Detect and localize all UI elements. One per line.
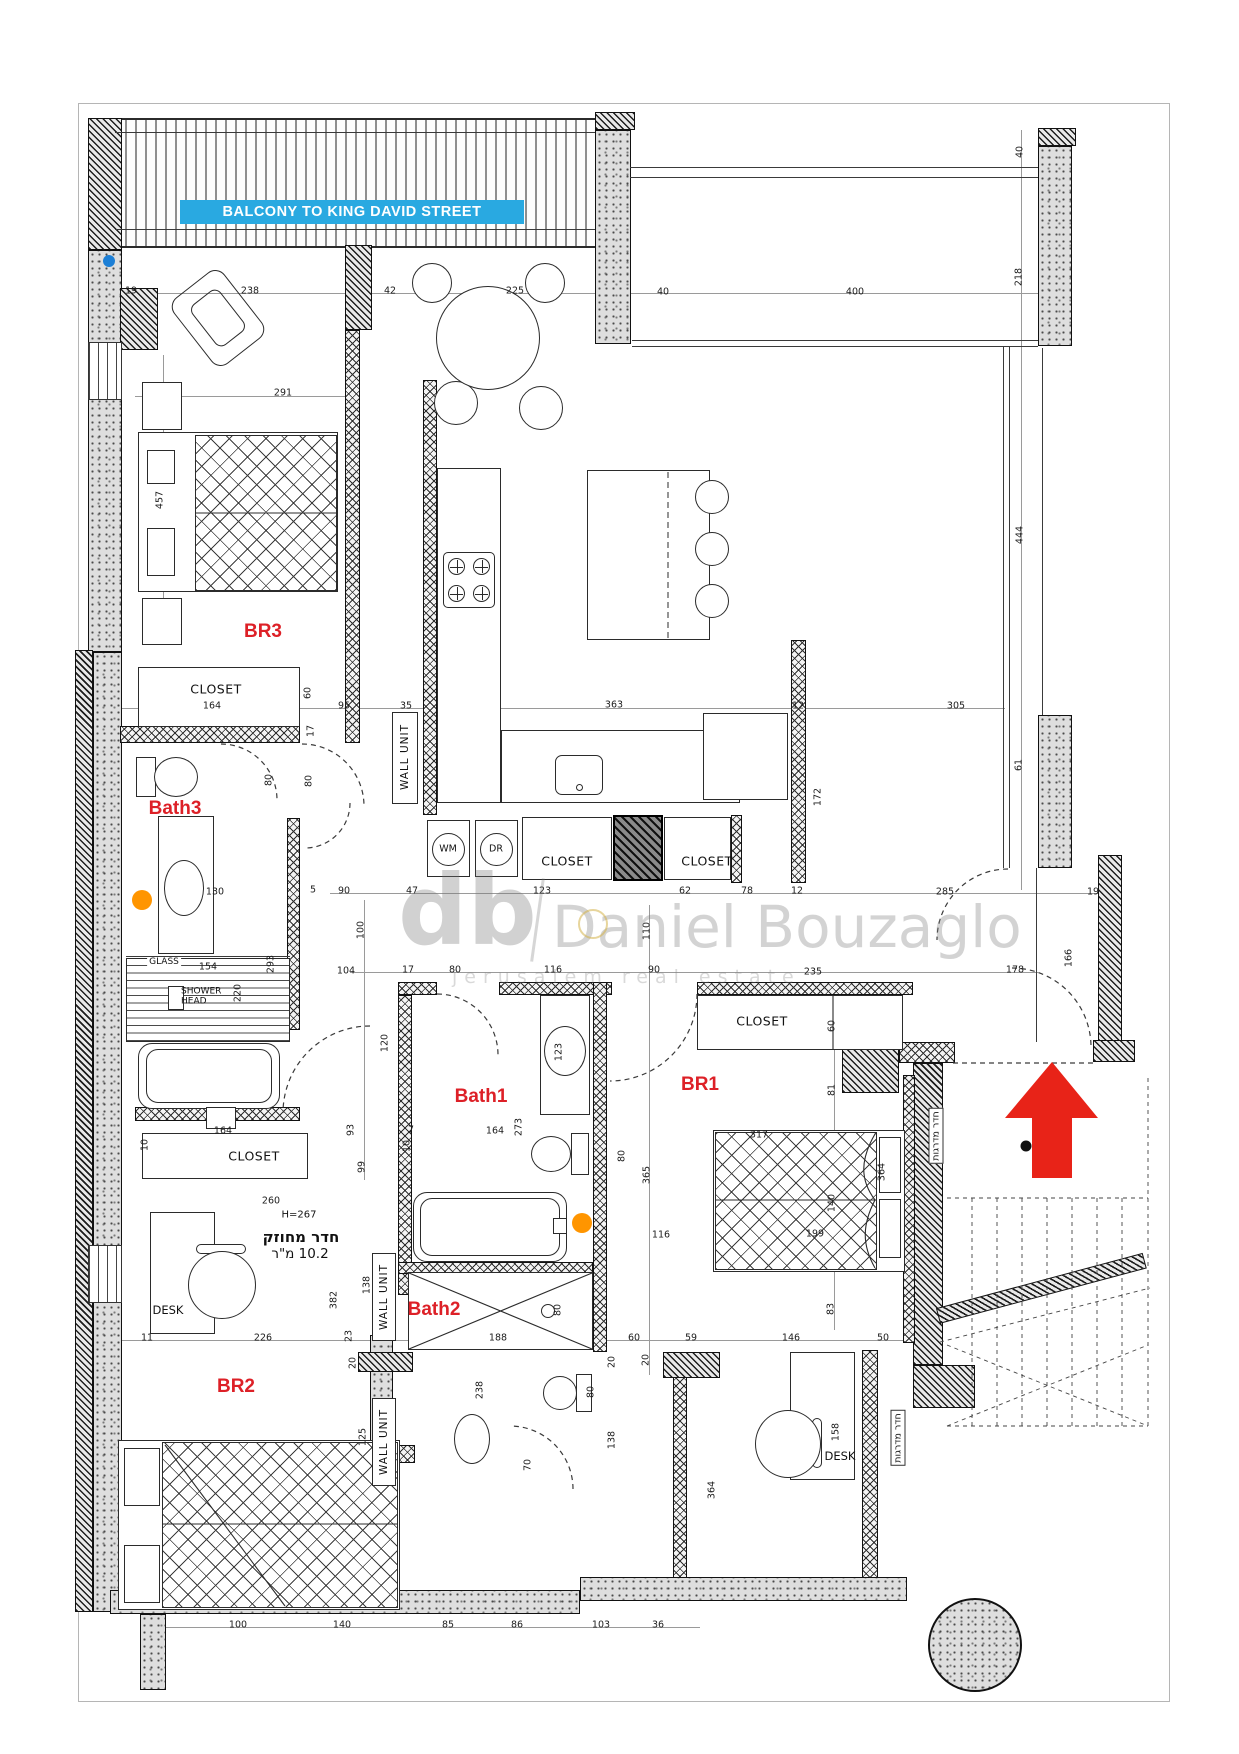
dimension-label: 164	[214, 1126, 232, 1137]
dimension-label: 199	[806, 1229, 824, 1240]
plan-label-hebv: חדר מדרגות	[929, 1108, 944, 1164]
dimension-label: 164	[486, 1126, 504, 1137]
dimension-label: 80	[617, 1150, 628, 1162]
dimension-label: 317	[750, 1130, 768, 1141]
dimension-label: 273	[514, 1118, 525, 1136]
dimension-label: 95	[338, 701, 350, 712]
plan-label-desk: DESK	[825, 1449, 856, 1463]
dimension-label: 220	[233, 984, 244, 1002]
dimension-label: 226	[254, 1333, 272, 1344]
plan-label-closet: CLOSET	[190, 682, 242, 697]
dimension-label: 172	[813, 788, 824, 806]
dimension-label: 260	[262, 1196, 280, 1207]
dimension-label: 17	[402, 965, 414, 976]
dimension-label: 61	[1014, 759, 1025, 771]
door-arc	[1012, 968, 1091, 1047]
plan-label-shower: SHOWER HEAD	[181, 987, 233, 1008]
door-arc	[305, 803, 350, 848]
dimension-label: 35	[400, 701, 412, 712]
dimension-label: 293	[266, 955, 277, 973]
dimension-label: 20	[641, 1354, 652, 1366]
dimension-label: 11	[141, 1333, 153, 1344]
dimension-label: 70	[523, 1459, 534, 1471]
dimension-label: 123	[554, 1043, 565, 1061]
dimension-label: 59	[685, 1333, 697, 1344]
dimension-label: 363	[605, 700, 623, 711]
dimension-label: 85	[442, 1620, 454, 1631]
plan-overlay	[0, 0, 1239, 1754]
dimension-label: 116	[652, 1230, 670, 1241]
dimension-label: 40	[1015, 146, 1026, 158]
dimension-label: 444	[1015, 526, 1026, 544]
dimension-label: 400	[846, 287, 864, 298]
entrance-arrow	[1005, 1062, 1098, 1178]
dimension-label: 42	[384, 286, 396, 297]
room-label-bath2: Bath2	[408, 1299, 461, 1321]
plan-label-heb1: חדר מחוזק	[263, 1228, 340, 1246]
bed-fold	[165, 1445, 285, 1606]
blanket-edge	[864, 1134, 875, 1268]
dimension-label: 457	[155, 491, 166, 509]
dimension-label: 116	[544, 965, 562, 976]
dimension-label: 103	[592, 1620, 610, 1631]
dimension-label: 140	[333, 1620, 351, 1631]
blue-marker-dot	[103, 255, 115, 267]
dimension-label: 83	[826, 1303, 837, 1315]
door-arc	[610, 994, 697, 1081]
dimension-label: 90	[648, 965, 660, 976]
dimension-label: 100	[356, 921, 367, 939]
room-label-br3: BR3	[244, 621, 282, 643]
dimension-label: 81	[827, 1084, 838, 1096]
dimension-label: 188	[489, 1333, 507, 1344]
dimension-label: 5	[310, 885, 316, 896]
plan-label-wu: WALL UNIT	[378, 1409, 390, 1475]
dimension-label: 10	[402, 1140, 413, 1152]
dimension-label: 146	[782, 1333, 800, 1344]
orange-marker-dot	[572, 1213, 592, 1233]
dimension-label: 138	[362, 1276, 373, 1294]
plan-label-desk: DESK	[153, 1303, 184, 1317]
dimension-label: 60	[827, 1020, 838, 1032]
dimension-label: 225	[506, 286, 524, 297]
dimension-label: 78	[741, 886, 753, 897]
dimension-label: 238	[241, 286, 259, 297]
dimension-label: 90	[338, 886, 350, 897]
dimension-label: 178	[1006, 965, 1024, 976]
dimension-label: 123	[533, 886, 551, 897]
door-arc	[283, 1026, 370, 1113]
dimension-label: 100	[229, 1620, 247, 1631]
dimension-label: 166	[1064, 949, 1075, 967]
dimension-label: 19	[1087, 887, 1099, 898]
orange-marker-dot	[132, 890, 152, 910]
plan-label-wu: WALL UNIT	[378, 1264, 390, 1330]
dimension-label: 154	[199, 962, 217, 973]
dimension-label: 36	[652, 1620, 664, 1631]
dimension-label: 47	[406, 886, 418, 897]
dimension-label: 291	[274, 388, 292, 399]
plan-label-closet: CLOSET	[736, 1014, 788, 1029]
door-arc	[437, 994, 498, 1055]
dimension-label: 7	[408, 1125, 414, 1136]
plan-label-app: WM	[439, 844, 457, 855]
dimension-label: 218	[1014, 268, 1025, 286]
dimension-label: 20	[348, 1357, 359, 1369]
dimension-label: 285	[936, 887, 954, 898]
dimension-label: 40	[657, 287, 669, 298]
dimension-label: 80	[449, 965, 461, 976]
room-label-bath3: Bath3	[149, 798, 202, 820]
dimension-label: 80	[264, 774, 275, 786]
plan-label-wu: WALL UNIT	[399, 724, 411, 790]
plan-label-closet: CLOSET	[228, 1149, 280, 1164]
door-arc	[221, 744, 277, 800]
plan-label-hebv: חדר מדרגות	[891, 1410, 906, 1466]
dimension-label: 10	[140, 1139, 151, 1151]
dimension-label: 17	[306, 725, 317, 737]
dimension-label: 130	[206, 887, 224, 898]
dimension-label: 60	[303, 687, 314, 699]
dimension-label: 158	[831, 1423, 842, 1441]
plan-label-h: H=267	[282, 1210, 317, 1221]
dimension-label: 23	[344, 1330, 355, 1342]
dimension-label: 20	[607, 1356, 618, 1368]
floorplan-page: BALCONY TO KING DAVID STREET	[0, 0, 1239, 1754]
dimension-label: 86	[511, 1620, 523, 1631]
dimension-label: 99	[357, 1161, 368, 1173]
room-label-br1: BR1	[681, 1074, 719, 1096]
door-arc	[937, 869, 1008, 940]
dimension-label: 140	[827, 1194, 838, 1212]
dimension-label: 19	[125, 286, 137, 297]
dimension-label: 235	[804, 967, 822, 978]
plan-label-closet: CLOSET	[681, 854, 733, 869]
dimension-label: 365	[642, 1166, 653, 1184]
dimension-label: 12	[792, 701, 804, 712]
door-arc	[510, 1426, 573, 1489]
dimension-label: 50	[877, 1333, 889, 1344]
plan-label-heb2: 10.2 מ"ר	[271, 1246, 328, 1262]
dimension-label: 364	[877, 1163, 888, 1181]
dimension-label: 138	[607, 1431, 618, 1449]
dimension-label: 120	[380, 1034, 391, 1052]
dimension-label: 60	[628, 1333, 640, 1344]
plan-label-closet: CLOSET	[541, 854, 593, 869]
dimension-label: 382	[329, 1291, 340, 1309]
dimension-label: 364	[707, 1481, 718, 1499]
dimension-label: 125	[358, 1428, 369, 1446]
room-label-br2: BR2	[217, 1376, 255, 1398]
plan-label-glass: GLASS	[147, 957, 181, 967]
dimension-label: 80	[586, 1386, 597, 1398]
dimension-label: 238	[475, 1381, 486, 1399]
dimension-label: 93	[346, 1124, 357, 1136]
dimension-label: 305	[947, 701, 965, 712]
dimension-label: 80	[553, 1304, 564, 1316]
dimension-label: 110	[642, 922, 653, 940]
dimension-label: 164	[203, 701, 221, 712]
plan-label-app: DR	[489, 844, 503, 855]
dimension-label: 80	[304, 775, 315, 787]
dimension-label: 104	[337, 966, 355, 977]
dimension-label: 12	[791, 886, 803, 897]
room-label-bath1: Bath1	[455, 1086, 508, 1108]
dimension-label: 62	[679, 886, 691, 897]
